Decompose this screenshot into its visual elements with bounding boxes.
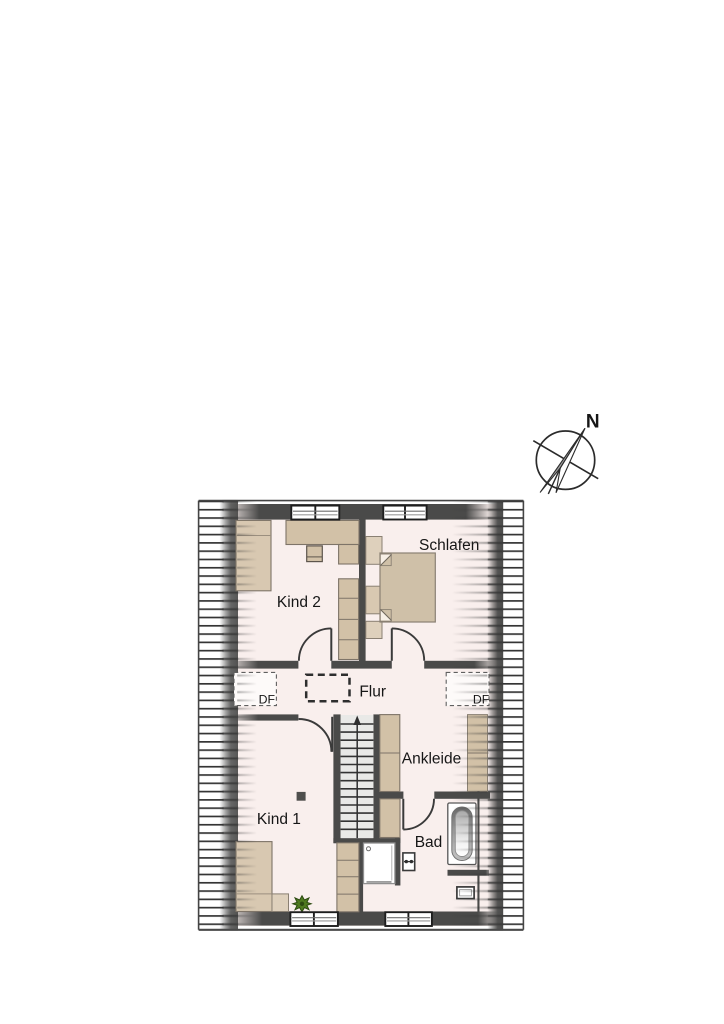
svg-text:Kind 2: Kind 2	[277, 594, 321, 611]
svg-text:Kind 1: Kind 1	[257, 811, 301, 828]
svg-text:DF: DF	[259, 692, 276, 706]
svg-text:Bad: Bad	[415, 834, 443, 851]
svg-text:N: N	[586, 411, 600, 432]
svg-text:Flur: Flur	[359, 683, 386, 700]
